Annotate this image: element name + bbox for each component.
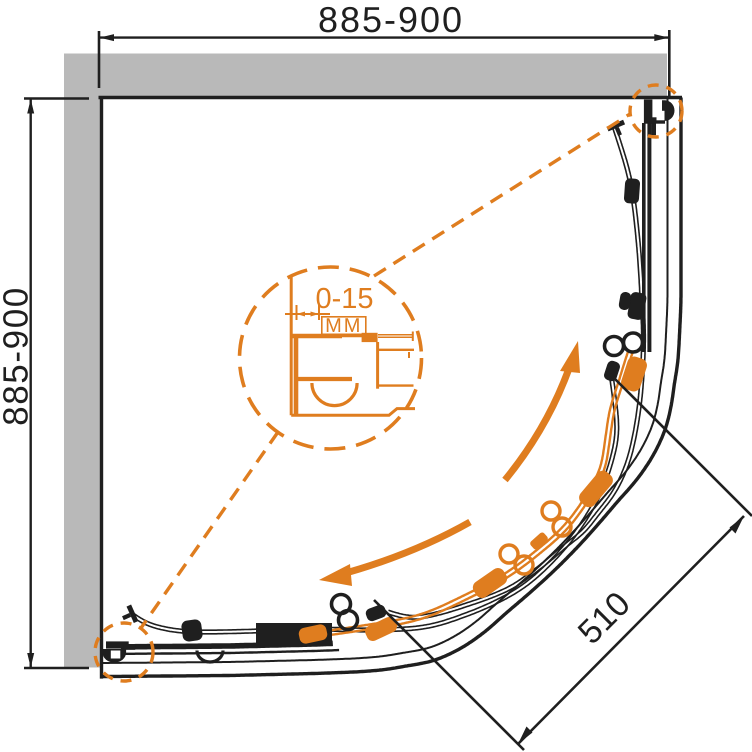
- svg-text:885-900: 885-900: [0, 286, 36, 426]
- svg-text:0-15: 0-15: [315, 283, 373, 315]
- svg-text:885-900: 885-900: [318, 0, 464, 40]
